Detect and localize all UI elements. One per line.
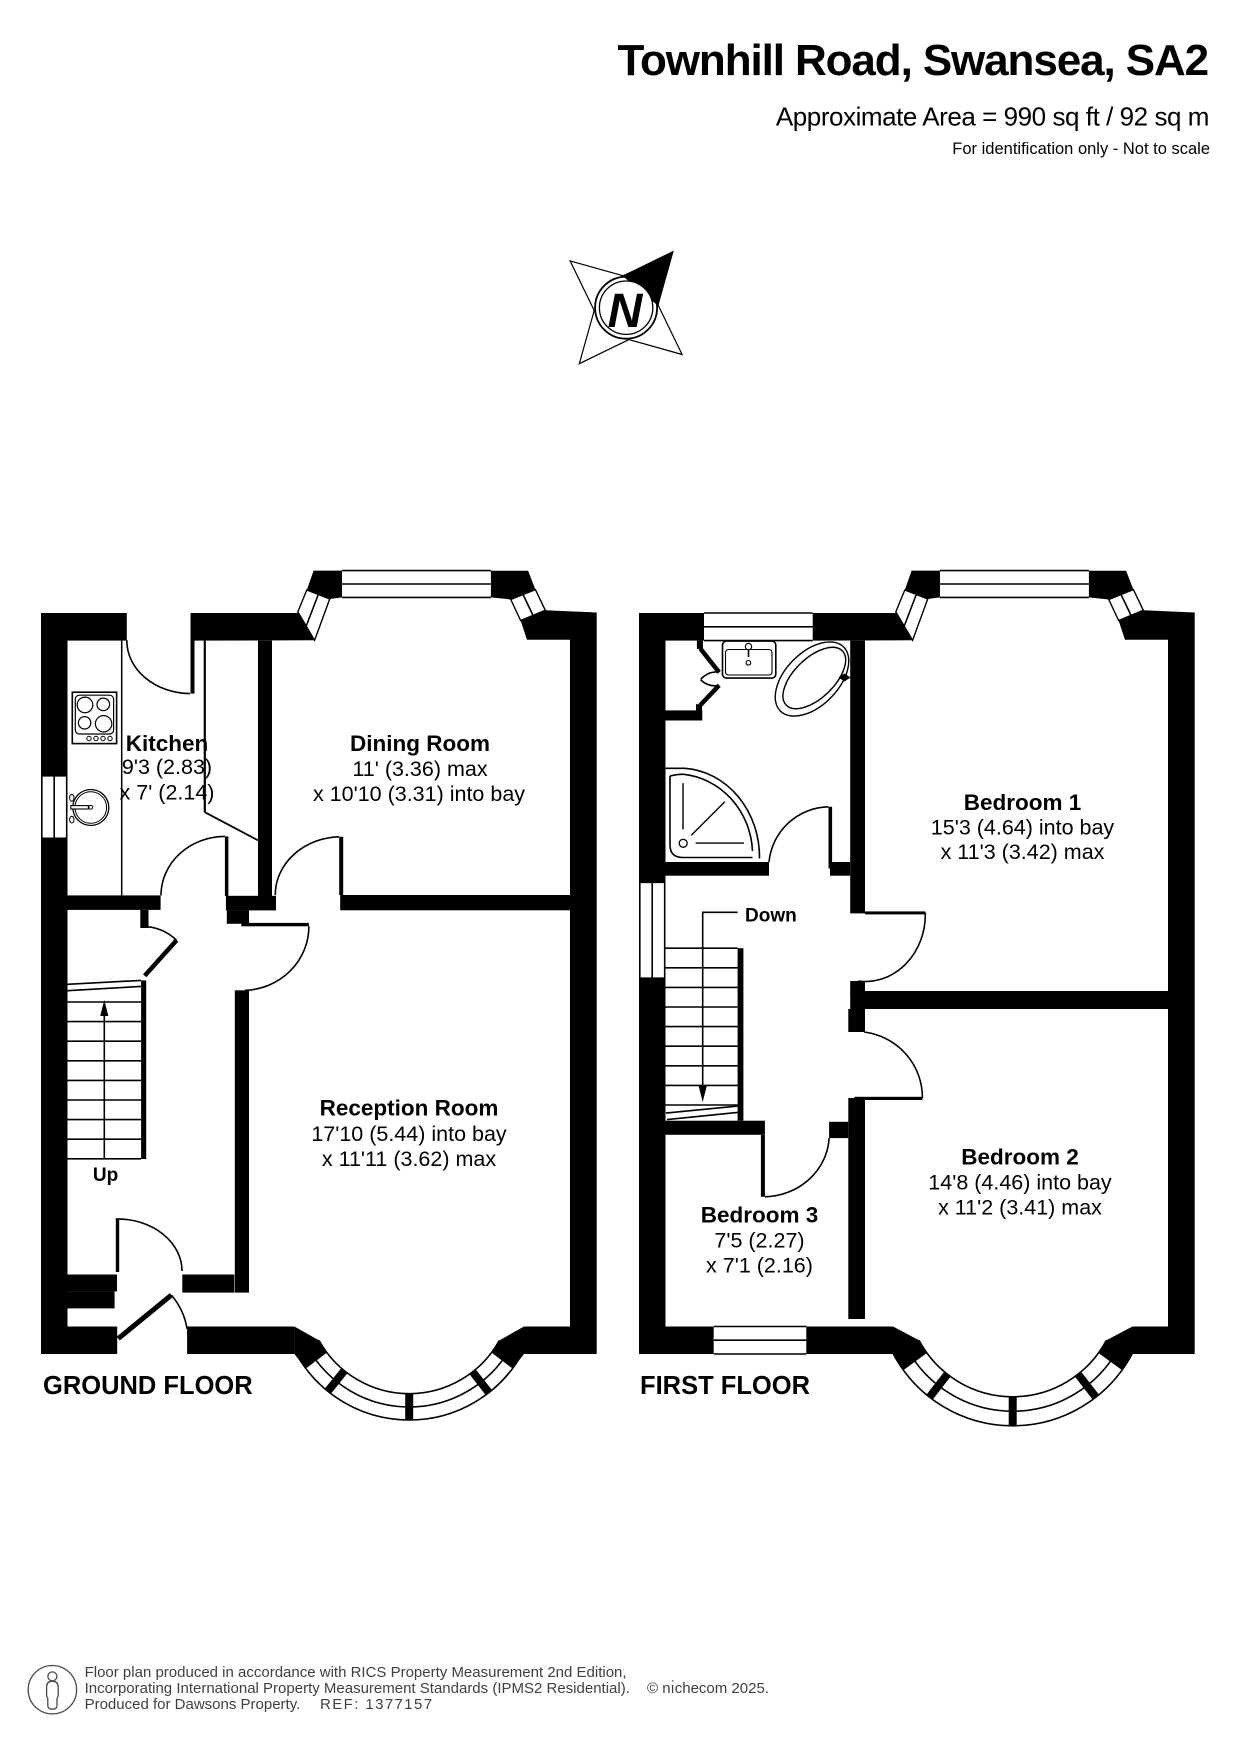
svg-text:Incorporating International Pr: Incorporating International Property Mea…	[85, 1680, 630, 1697]
svg-text:Up: Up	[93, 1165, 118, 1186]
svg-text:Bedroom 2: Bedroom 2	[961, 1145, 1079, 1170]
svg-text:7'5 (2.27): 7'5 (2.27)	[714, 1229, 804, 1253]
svg-text:x 10'10 (3.31) into bay: x 10'10 (3.31) into bay	[313, 782, 525, 806]
svg-text:Bedroom 3: Bedroom 3	[701, 1203, 819, 1228]
svg-text:x 11'3 (3.42) max: x 11'3 (3.42) max	[941, 840, 1105, 864]
svg-text:FIRST FLOOR: FIRST FLOOR	[640, 1372, 810, 1400]
svg-text:Townhill Road, Swansea, SA2: Townhill Road, Swansea, SA2	[618, 36, 1209, 85]
svg-text:15'3 (4.64) into bay: 15'3 (4.64) into bay	[931, 816, 1115, 840]
svg-text:9'3 (2.83): 9'3 (2.83)	[122, 755, 212, 779]
svg-text:Produced for Dawsons Property.: Produced for Dawsons Property.	[85, 1696, 301, 1713]
svg-text:REF: 1377157: REF: 1377157	[320, 1696, 434, 1713]
svg-text:x 7' (2.14): x 7' (2.14)	[120, 780, 215, 804]
svg-text:Approximate Area = 990 sq ft /: Approximate Area = 990 sq ft / 92 sq m	[776, 102, 1209, 132]
svg-text:For identification only - Not: For identification only - Not to scale	[952, 140, 1210, 158]
svg-text:GROUND FLOOR: GROUND FLOOR	[43, 1372, 253, 1400]
svg-text:N: N	[608, 285, 644, 338]
svg-text:11' (3.36) max: 11' (3.36) max	[352, 757, 487, 781]
svg-text:Floor plan produced in accorda: Floor plan produced in accordance with R…	[85, 1664, 627, 1681]
svg-text:x 7'1 (2.16): x 7'1 (2.16)	[706, 1254, 813, 1278]
svg-text:Dining Room: Dining Room	[350, 731, 490, 756]
svg-text:x 11'11 (3.62) max: x 11'11 (3.62) max	[322, 1147, 496, 1171]
svg-text:© nı̇checom 2025.: © nı̇checom 2025.	[647, 1680, 769, 1697]
svg-text:Bedroom 1: Bedroom 1	[964, 790, 1082, 815]
svg-text:14'8 (4.46) into bay: 14'8 (4.46) into bay	[928, 1171, 1112, 1195]
svg-text:Kitchen: Kitchen	[126, 731, 209, 756]
svg-text:x 11'2 (3.41) max: x 11'2 (3.41) max	[938, 1196, 1102, 1220]
svg-text:Down: Down	[745, 906, 797, 927]
svg-text:Reception Room: Reception Room	[320, 1096, 499, 1121]
svg-text:17'10 (5.44) into bay: 17'10 (5.44) into bay	[311, 1122, 507, 1146]
